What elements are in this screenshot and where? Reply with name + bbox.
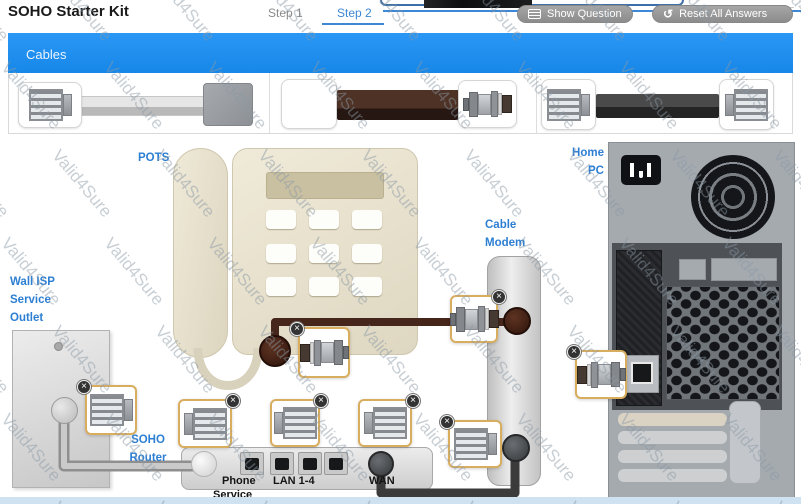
router-port-lan[interactable]: [270, 452, 294, 475]
coax-cable-empty-end[interactable]: [281, 79, 337, 129]
pc-expansion-slot-cover: [618, 413, 727, 426]
coax-f-connector-icon: [450, 306, 499, 332]
ethernet-cable[interactable]: [596, 94, 719, 118]
rj11-plug-icon: [29, 89, 72, 121]
router-port-lan[interactable]: [324, 452, 348, 475]
phone-key: [266, 244, 296, 263]
show-question-button[interactable]: Show Question: [517, 5, 633, 23]
coax-f-connector-icon: [463, 91, 512, 117]
rj45-plug-icon: [454, 428, 497, 460]
wall-outlet-node[interactable]: [51, 397, 78, 424]
router-port-phone[interactable]: [240, 452, 264, 475]
label-soho-router: SOHO Router: [124, 432, 172, 468]
reset-all-label: Reset All Answers: [679, 8, 767, 20]
phone-cable-rj11-end[interactable]: [18, 82, 82, 128]
label-router-phone: Phone: [222, 475, 256, 487]
phone-key: [309, 210, 339, 229]
router-wan-node[interactable]: [368, 451, 394, 477]
soho-simulation-screen: SOHO Starter Kit Step 1 Step 2 Show Ques…: [0, 0, 801, 504]
watermark-text: Valid4Sure: [0, 322, 13, 398]
connector-wall-outlet-rj11[interactable]: ×: [85, 385, 137, 435]
remove-connector-icon[interactable]: ×: [77, 380, 91, 394]
rj45-plug-icon: [547, 89, 590, 121]
phone-key: [352, 210, 382, 229]
label-router-lan: LAN 1-4: [273, 475, 315, 487]
modem-coax-node[interactable]: [503, 307, 531, 335]
coax-cable-connector-end[interactable]: [458, 80, 517, 128]
remove-connector-icon[interactable]: ×: [226, 394, 240, 408]
phone-cable[interactable]: [80, 96, 205, 116]
router-port-lan[interactable]: [298, 452, 322, 475]
phone-key: [266, 210, 296, 229]
remove-connector-icon[interactable]: ×: [492, 290, 506, 304]
tab-step-1[interactable]: Step 1: [268, 6, 303, 20]
remove-connector-icon[interactable]: ×: [290, 322, 304, 336]
pc-fan-icon: [691, 155, 775, 239]
label-home-pc: Home PC: [556, 145, 604, 181]
pc-honeycomb-vent: [666, 286, 780, 400]
rj11-plug-icon: [90, 394, 133, 426]
label-cable-modem: Cable Modem: [485, 217, 525, 253]
ethernet-cable-left-end[interactable]: [541, 79, 596, 130]
phone-cable-gray-end[interactable]: [203, 83, 253, 126]
router-service-node[interactable]: [191, 451, 217, 477]
outlet-screw: [54, 342, 63, 351]
phone-key: [309, 244, 339, 263]
label-pots: POTS: [138, 150, 169, 168]
tab-step-2-underline: [322, 23, 384, 25]
connector-modem-coax[interactable]: ×: [450, 295, 498, 343]
watermark-text: Valid4Sure: [460, 146, 528, 222]
phone-key: [352, 277, 382, 296]
question-list-icon: [528, 9, 541, 19]
pots-phone-screen: [266, 172, 384, 199]
connector-phone-coax[interactable]: ×: [298, 327, 350, 378]
pc-ethernet-port[interactable]: [625, 355, 659, 393]
phone-key: [309, 277, 339, 296]
watermark-text: Valid4Sure: [48, 146, 116, 222]
rj45-plug-icon: [725, 89, 768, 121]
reset-arrow-icon: ↺: [663, 9, 673, 19]
pc-expansion-slot-cover: [618, 450, 727, 463]
phone-coax-node[interactable]: [259, 335, 291, 367]
pc-io-plate: [711, 258, 777, 281]
remove-connector-icon[interactable]: ×: [314, 394, 328, 408]
tab-step-2[interactable]: Step 2: [337, 6, 372, 20]
page-title: SOHO Starter Kit: [8, 3, 129, 20]
modem-ethernet-node[interactable]: [502, 434, 530, 462]
remove-connector-icon[interactable]: ×: [440, 415, 454, 429]
show-question-label: Show Question: [547, 8, 622, 20]
watermark-text: Valid4Sure: [0, 146, 13, 222]
coax-f-connector-icon: [300, 340, 349, 366]
connector-router-wan-rj45[interactable]: ×: [358, 399, 412, 447]
pots-phone-handset: [173, 148, 228, 358]
ethernet-cable-right-end[interactable]: [719, 79, 774, 130]
pc-expansion-slot-cover: [618, 431, 727, 444]
reset-all-answers-button[interactable]: ↺ Reset All Answers: [652, 5, 793, 23]
watermark-text: Valid4Sure: [100, 234, 168, 310]
label-router-wan: WAN: [369, 475, 395, 487]
remove-connector-icon[interactable]: ×: [406, 394, 420, 408]
pc-expansion-slot-cover: [618, 469, 727, 482]
connector-modem-rj45[interactable]: ×: [448, 420, 502, 468]
label-wall-isp-outlet: Wall ISP Service Outlet: [10, 274, 55, 327]
pc-io-plate: [679, 259, 706, 280]
phone-key: [352, 244, 382, 263]
coax-cable[interactable]: [337, 90, 459, 120]
connector-router-phone-rj11[interactable]: ×: [178, 399, 232, 448]
rj11-plug-icon: [184, 408, 227, 440]
connector-pc-coax[interactable]: ×: [575, 350, 627, 399]
cutoff-popup-image: [424, 0, 532, 8]
tray-divider: [269, 73, 270, 134]
connector-router-lan-rj11[interactable]: ×: [270, 399, 320, 447]
tray-divider: [536, 73, 537, 134]
pc-bracket: [729, 401, 761, 484]
cables-panel-title: Cables: [26, 47, 66, 62]
rj11-plug-icon: [274, 407, 317, 439]
pc-power-socket: [621, 155, 661, 185]
phone-key: [266, 277, 296, 296]
remove-connector-icon[interactable]: ×: [567, 345, 581, 359]
coax-f-connector-icon: [577, 362, 626, 388]
cables-panel-header: Cables: [8, 33, 793, 73]
rj45-plug-icon: [364, 407, 407, 439]
bottom-panel-edge: [0, 497, 801, 504]
